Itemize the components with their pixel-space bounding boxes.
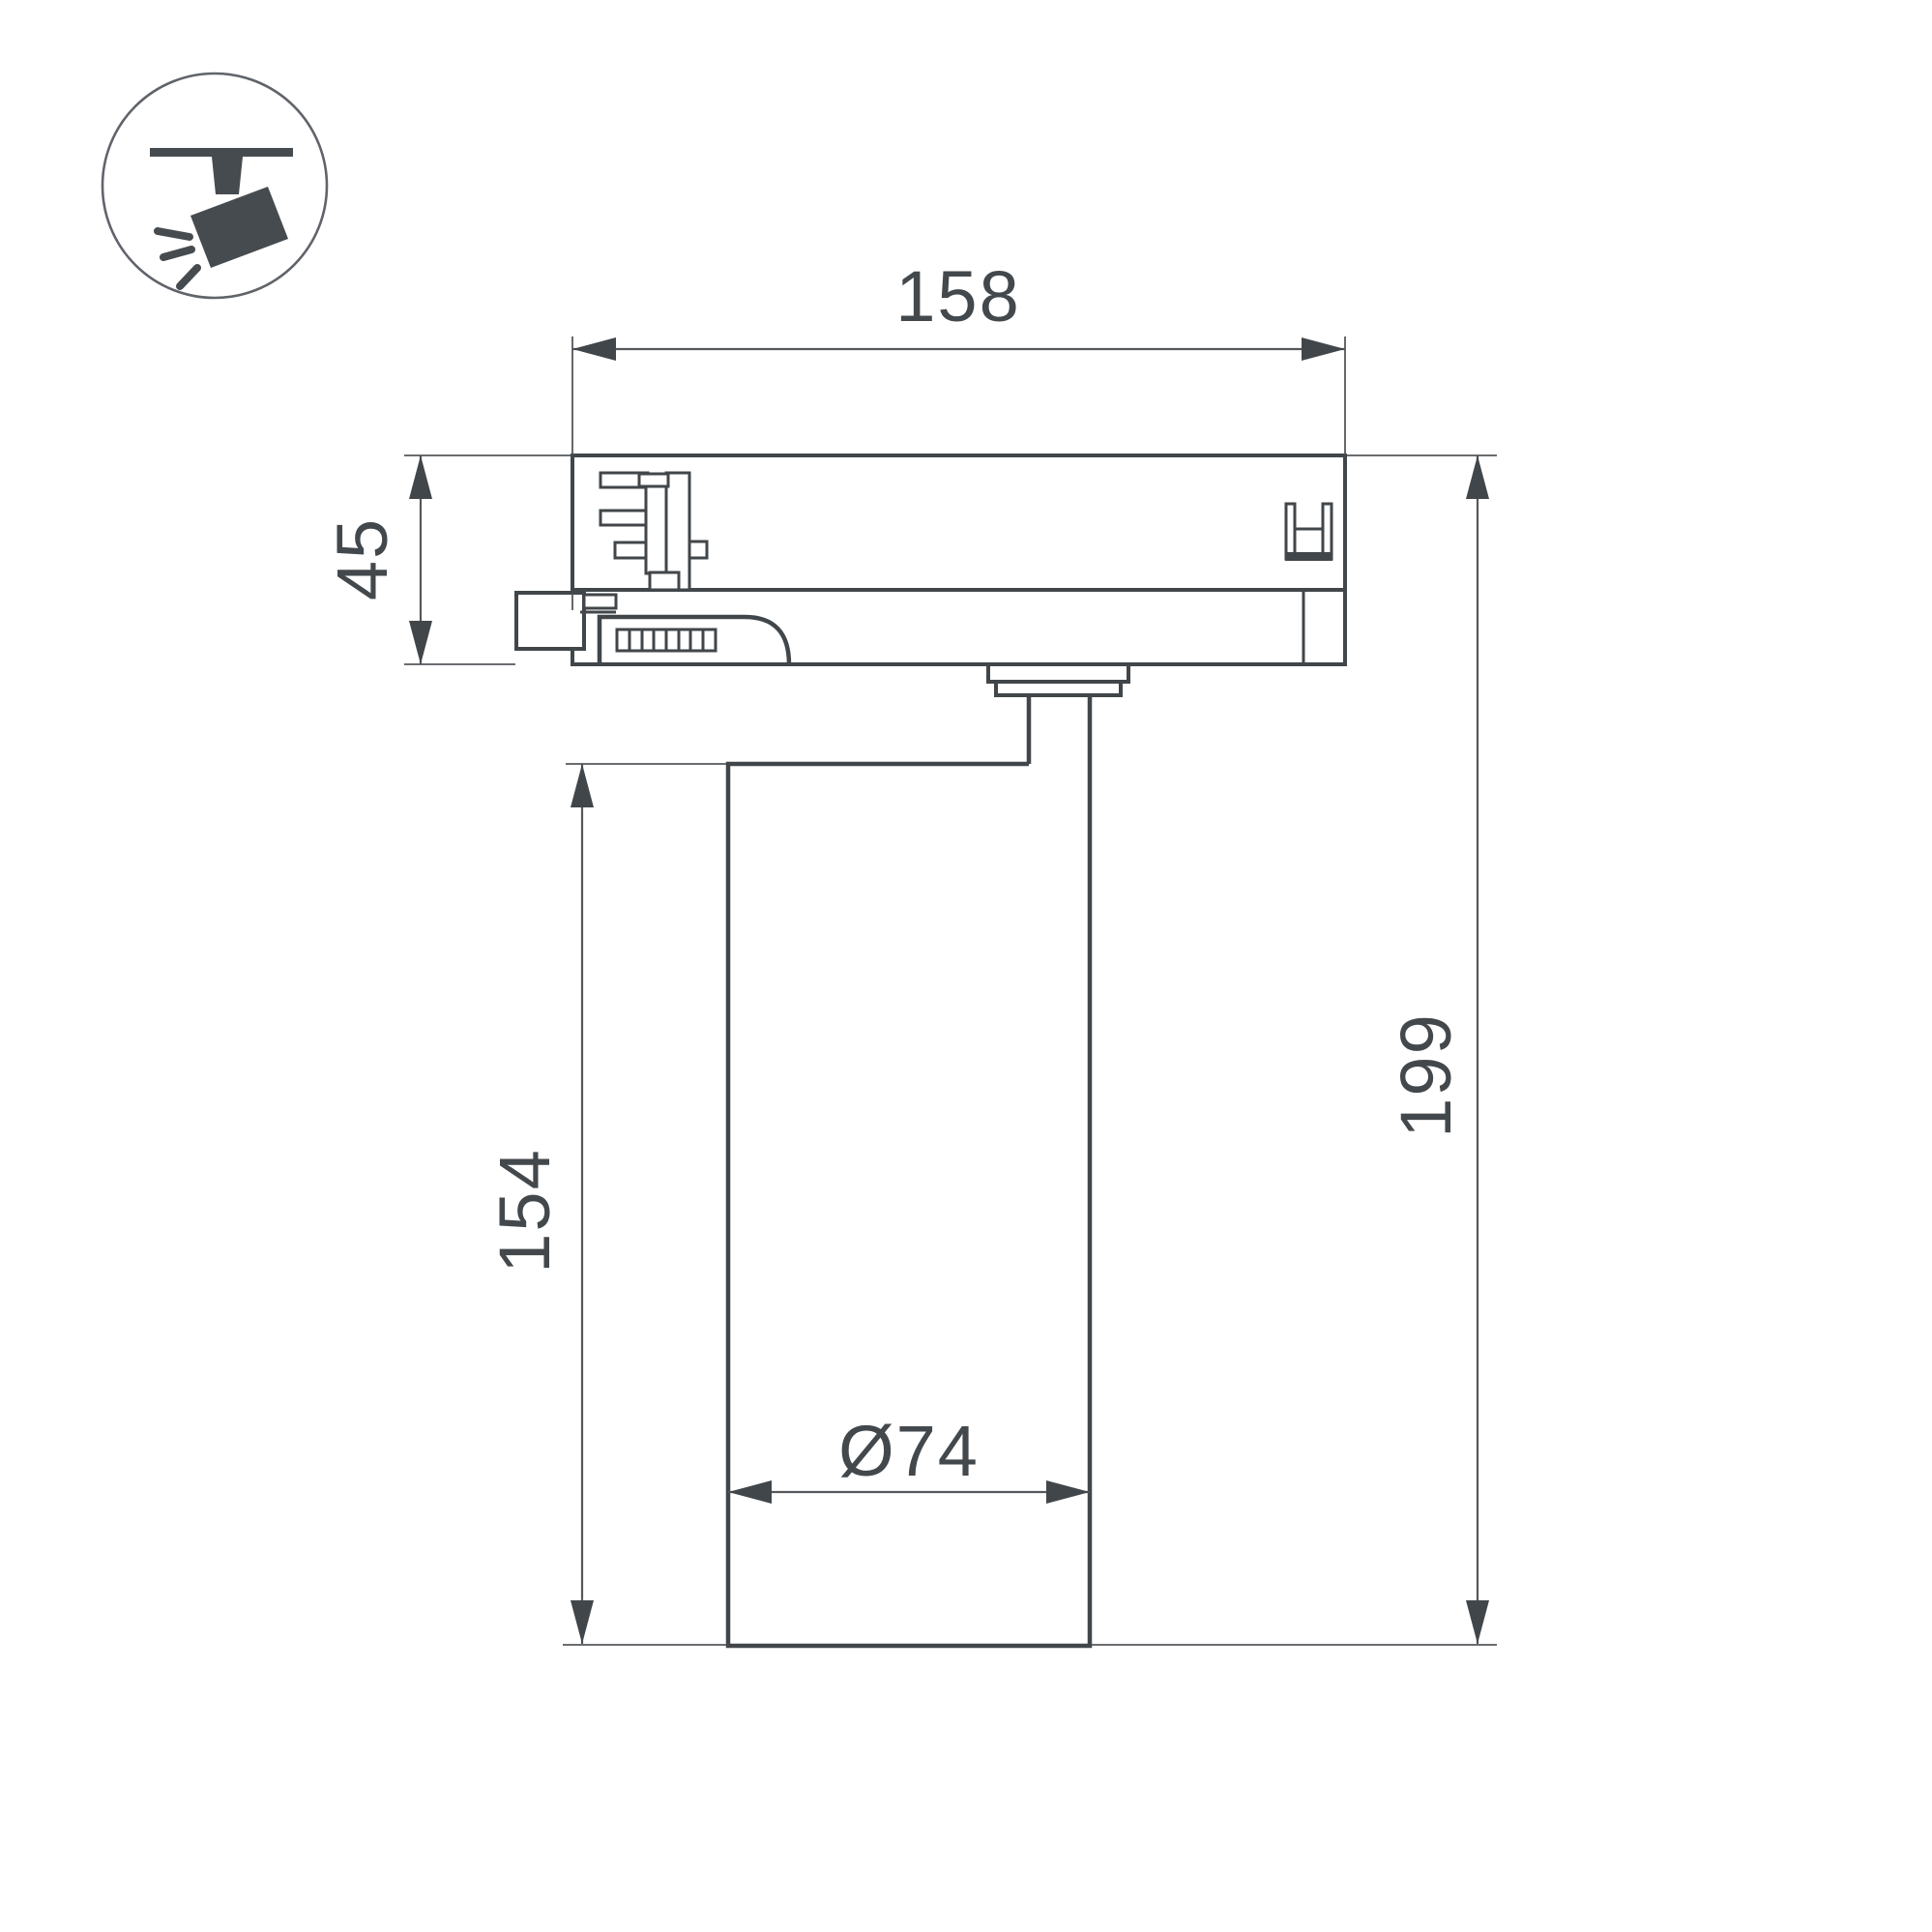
cylinder-outline [728, 764, 1090, 1646]
track-adapter [516, 455, 1345, 664]
dimension-label-adapter-height: 45 [322, 517, 402, 600]
arrowhead-right [1046, 1480, 1090, 1504]
arrowhead-top [571, 764, 594, 807]
arrowhead-right [1302, 337, 1345, 361]
contact-tab [689, 542, 707, 558]
adapter-lower-band [572, 590, 1345, 664]
icon-track-stem [212, 157, 243, 194]
dimension-width-158: 158 [572, 256, 1345, 454]
track-spotlight-icon [102, 73, 327, 298]
icon-track-bar [150, 148, 293, 157]
mount-step-1 [988, 664, 1128, 682]
arrowhead-top [409, 455, 432, 499]
latch-block [516, 593, 584, 649]
arrowhead-bottom [571, 1600, 594, 1644]
bracket-leg [1286, 504, 1295, 559]
dimension-label-diameter: Ø74 [838, 1411, 980, 1491]
contact-screw-head [639, 474, 668, 486]
mount-step-2 [996, 682, 1121, 695]
track-light-dimension-drawing: 158 45 154 199 Ø74 [0, 0, 1932, 1932]
bracket-leg [1323, 504, 1332, 559]
dimension-label-total-height: 199 [1386, 1012, 1466, 1137]
bracket-base [1285, 552, 1332, 561]
contact-prong [600, 511, 646, 525]
contact-foot [650, 572, 679, 590]
arrowhead-left [572, 337, 616, 361]
latch-notch [584, 595, 616, 608]
dimension-label-width: 158 [895, 256, 1020, 337]
dimension-body-height-154: 154 [484, 764, 726, 1645]
arrowhead-left [728, 1480, 772, 1504]
dimension-label-body-height: 154 [484, 1148, 565, 1273]
arrowhead-bottom [1466, 1600, 1489, 1644]
mount-stem [1029, 695, 1090, 764]
contact-prong [615, 542, 646, 558]
contact-screw-stem [646, 486, 666, 573]
dimension-diameter-74: Ø74 [728, 1411, 1090, 1504]
arrowhead-bottom [409, 621, 432, 664]
lamp-body [728, 664, 1128, 1646]
arrowhead-top [1466, 455, 1489, 499]
drawing-page: 158 45 154 199 Ø74 [0, 0, 1932, 1932]
